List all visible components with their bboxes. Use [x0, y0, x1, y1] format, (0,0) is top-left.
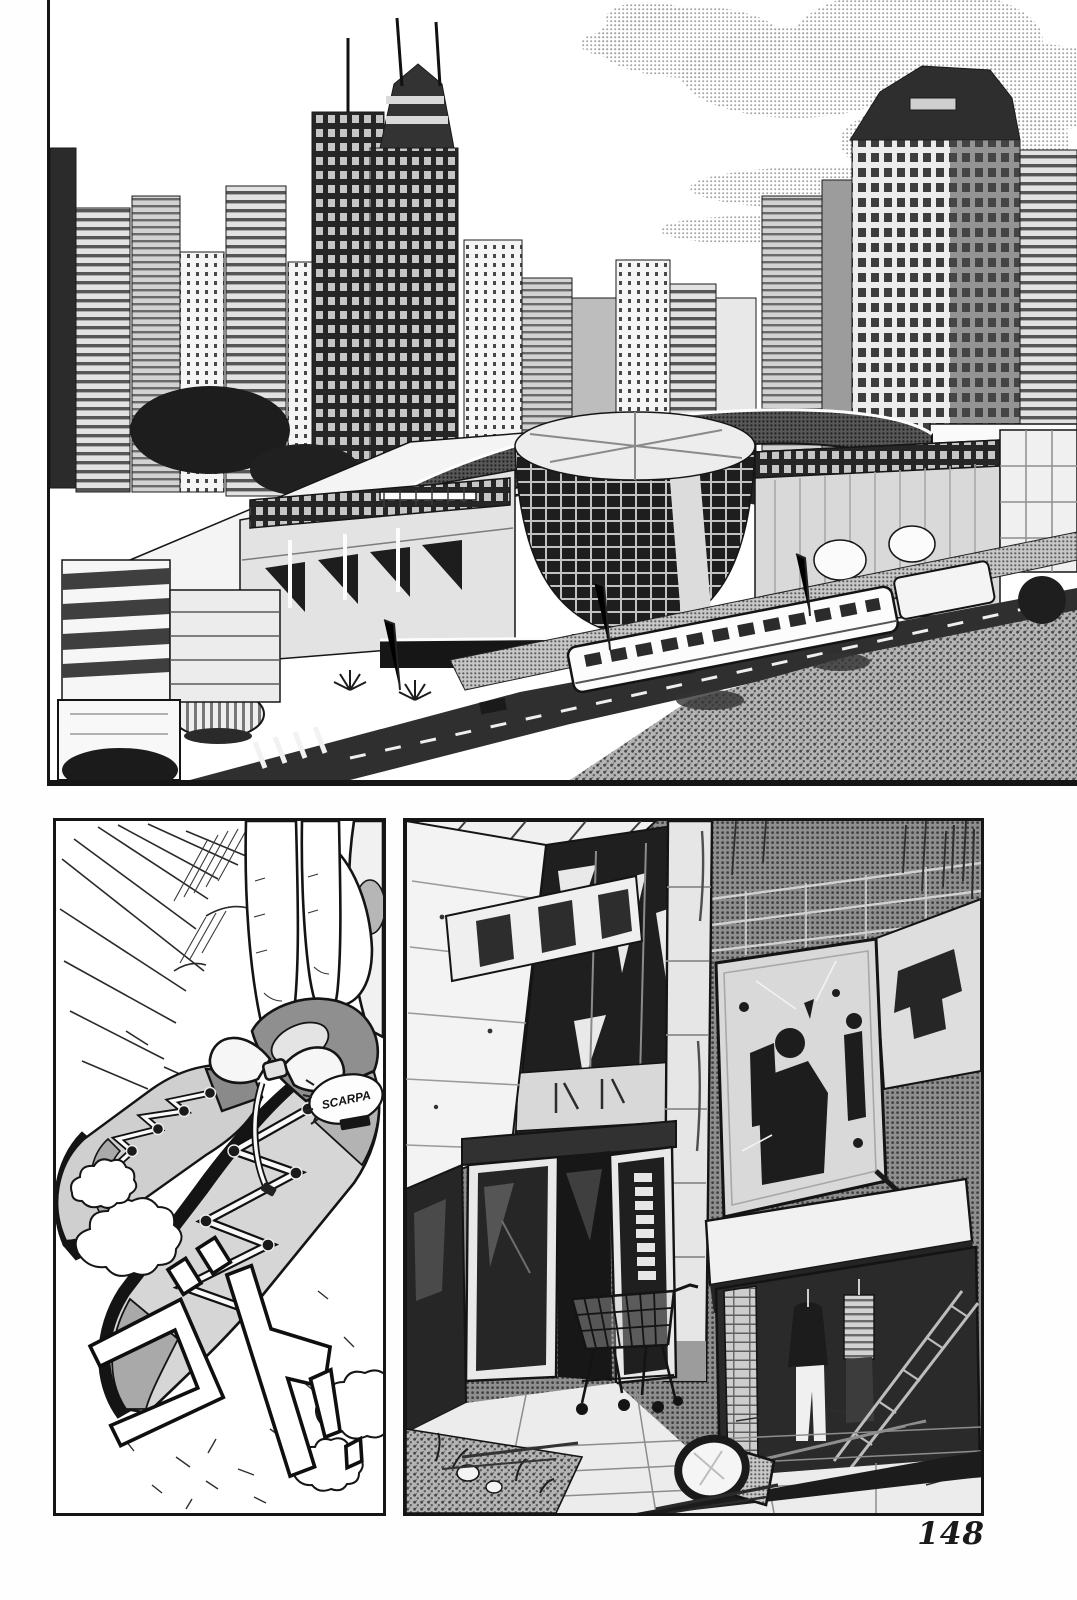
page-number: 148	[917, 1516, 985, 1552]
closed-door	[466, 1157, 558, 1381]
panel-boots: ゴト !	[53, 818, 386, 1516]
corner-building	[58, 700, 180, 780]
manga-page: ゴト !	[0, 0, 1077, 1600]
panel-cityscape	[47, 0, 1077, 786]
panel-mall-interior	[403, 818, 984, 1516]
